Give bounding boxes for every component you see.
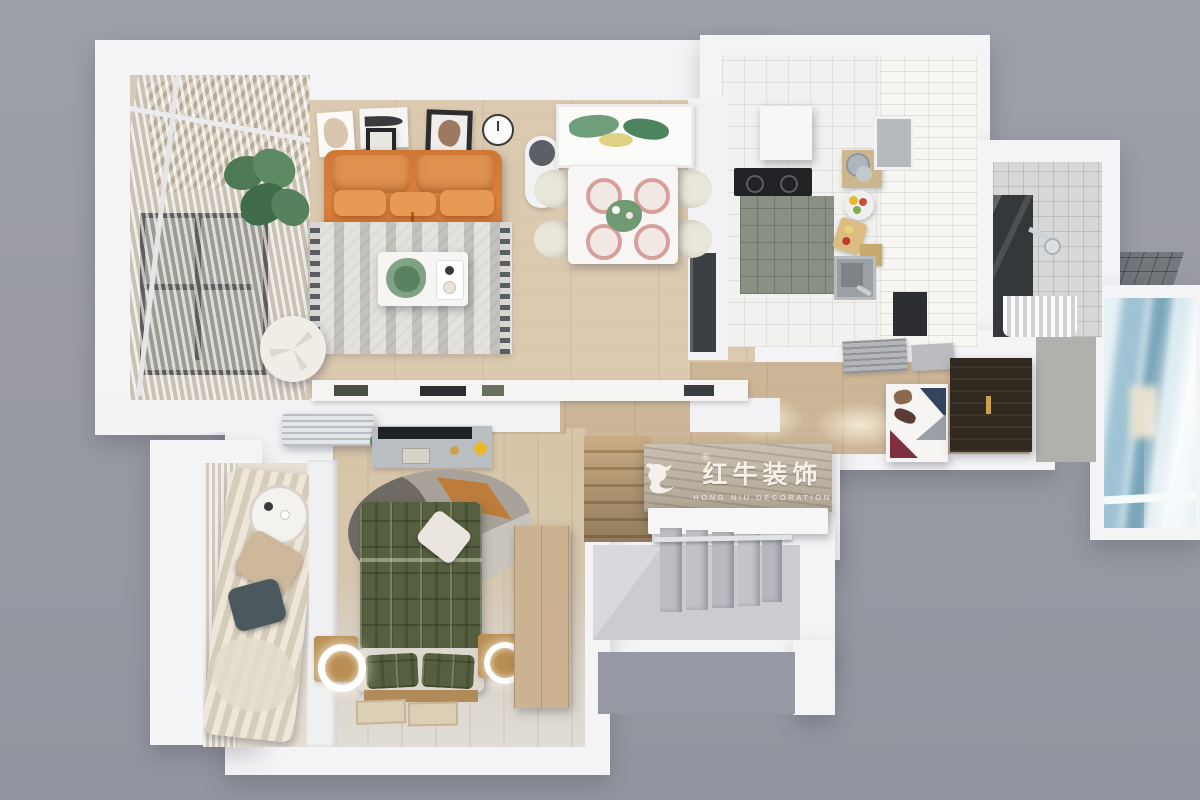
bedroom-balcony: [203, 463, 309, 747]
fruit: [853, 206, 861, 214]
table-flowers: [606, 200, 642, 232]
purifier-top: [529, 140, 555, 166]
bed-frame-head: [358, 648, 484, 692]
upper-stairs-wood: [584, 436, 652, 542]
plate: [856, 166, 872, 182]
dining-wall-art: [556, 104, 694, 168]
flower: [612, 206, 620, 214]
dark-appliance: [893, 292, 927, 336]
wall-clock: [482, 114, 514, 146]
bed-pillow: [365, 653, 419, 690]
exterior-gray-face: [1036, 322, 1096, 462]
bedside-floor-mat: [356, 699, 407, 725]
cooktop: [734, 168, 812, 196]
rug-border: [500, 222, 510, 354]
ac-unit: [282, 414, 374, 446]
duvet-fold: [360, 558, 482, 562]
dining-chair: [672, 170, 712, 208]
stairs-shade: [584, 436, 652, 542]
sofa-lumbar-pillow: [440, 190, 494, 216]
burner: [780, 175, 798, 193]
desk-yellow-ball: [474, 442, 487, 455]
shoe-cabinet-top: [886, 384, 948, 462]
flower: [626, 212, 633, 219]
desk-lamp: [450, 446, 459, 455]
living-hall-wall: [690, 398, 780, 432]
shoes-pair: [893, 406, 918, 426]
shower-curtain: [1003, 296, 1077, 337]
lower-level-void: [598, 652, 795, 714]
fruit: [859, 198, 867, 206]
brand-name-en: HONG NIU DECORATION: [693, 493, 831, 502]
kitchen-tile-mat: [740, 196, 834, 294]
lower-stair-tread: [712, 532, 734, 608]
table-plant-dark: [394, 266, 420, 292]
brand-name-cn: 红牛装饰: [702, 455, 822, 491]
serving-tray: [436, 260, 464, 300]
burner: [746, 175, 764, 193]
sofa-back-cushion: [416, 155, 494, 193]
console-decor: [420, 386, 466, 396]
fruit: [849, 196, 858, 205]
console-decor: [334, 385, 368, 396]
botanical-print: [599, 133, 633, 147]
desk-decor: [402, 448, 430, 464]
teacup: [280, 510, 290, 520]
art-print: [370, 132, 392, 150]
sink-basin: [841, 263, 863, 287]
pattern-triangle-maroon: [890, 430, 918, 458]
white-throw-pillow: [415, 508, 473, 565]
teacup: [264, 502, 273, 511]
dining-table: [568, 166, 678, 264]
ceiling-light-panel: [842, 338, 908, 373]
shoes-pair: [893, 388, 914, 405]
pouf-folds: [270, 326, 316, 372]
place-setting: [634, 224, 670, 260]
bean-bag-pouf: [260, 316, 326, 382]
tv-console: [312, 380, 748, 401]
lower-stair-tread: [738, 534, 760, 606]
bed-pillow: [421, 653, 475, 690]
sofa-back-cushion: [332, 155, 410, 193]
clock-hand: [497, 121, 499, 131]
console-decor: [482, 385, 504, 396]
floor-plan-render: 红牛装饰 HONG NIU DECORATION ®: [0, 0, 1200, 800]
shower-head: [1044, 238, 1061, 255]
fruit-bowl: [844, 190, 874, 220]
coffee-table: [378, 252, 468, 306]
brand-watermark-banner: 红牛装饰 HONG NIU DECORATION ®: [644, 444, 832, 512]
hongniu-bull-icon: [644, 460, 684, 496]
balcony-divider-wall: [307, 460, 337, 747]
dining-chair: [672, 220, 712, 258]
cup: [443, 281, 456, 294]
monstera-plant: [222, 150, 312, 238]
pattern-triangle-navy: [920, 388, 946, 418]
fridge: [690, 253, 716, 352]
registered-trademark: ®: [702, 452, 709, 463]
pattern-triangle-gray: [916, 414, 946, 440]
wall-tv: [378, 427, 472, 439]
window-bay-glass: [1104, 298, 1196, 528]
bed-duvet: [360, 502, 482, 652]
entry-door: [950, 358, 1032, 452]
kitchen-window: [874, 116, 914, 170]
stairwell-right-wall: [793, 640, 835, 715]
sofa-lumbar-pillow: [334, 190, 386, 216]
ceiling-light-panel: [911, 343, 954, 371]
food-item: [841, 236, 851, 246]
lower-stair-tread: [762, 536, 782, 602]
lower-stair-tread: [686, 530, 708, 610]
ring-lamp-left: [318, 644, 366, 692]
wardrobe: [514, 526, 570, 708]
cup: [445, 266, 454, 275]
bedside-floor-mat: [408, 702, 458, 727]
door-handle: [986, 396, 991, 414]
art-print: [365, 115, 403, 126]
art-print: [323, 117, 349, 149]
food-item: [843, 224, 855, 235]
console-decor: [684, 385, 714, 396]
range-hood: [760, 106, 812, 160]
